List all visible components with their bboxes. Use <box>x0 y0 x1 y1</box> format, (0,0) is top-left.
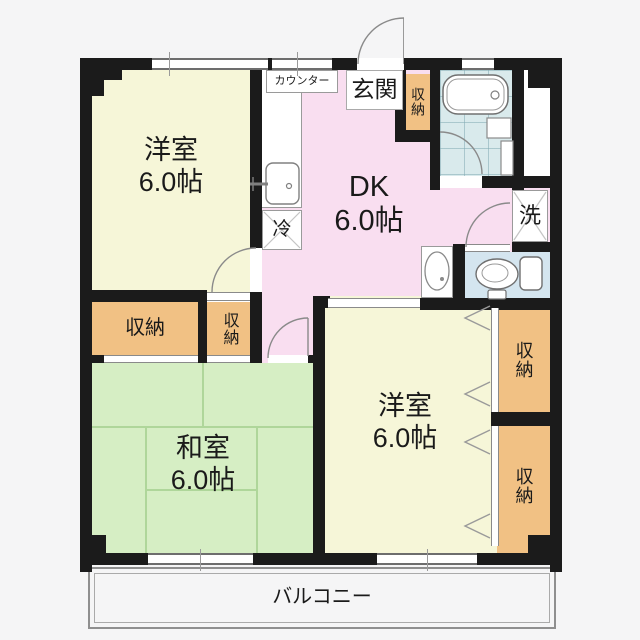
counter-label: カウンター <box>266 71 338 92</box>
window-tick <box>200 549 201 571</box>
toilet-room-floor <box>465 252 550 300</box>
room-dk-label: DK6.0帖 <box>317 168 421 240</box>
wall-bit <box>92 355 104 363</box>
wall-toilet-left <box>453 244 465 310</box>
entrance-door-opening <box>357 58 404 70</box>
window <box>272 58 332 70</box>
laundry-label: 洗 <box>512 191 548 241</box>
bathroom-floor <box>440 70 512 176</box>
room-japanese-label: 和室6.0帖 <box>128 430 278 500</box>
door-opening <box>440 176 482 188</box>
pillar-top-right <box>528 58 562 88</box>
sliding-door-track <box>207 292 250 301</box>
wall-bath-right <box>512 58 524 190</box>
washbasin <box>421 246 453 298</box>
window-tick <box>427 549 428 571</box>
window-tick <box>169 52 170 76</box>
pillar-top-left <box>80 58 104 96</box>
entrance-door-leaf <box>403 18 404 64</box>
floorplan-page: { "rooms": { "western_a": {"label": "洋室"… <box>0 0 640 640</box>
room-western-a-label: 洋室6.0帖 <box>96 132 246 202</box>
wall-storage-right-divider <box>491 412 550 426</box>
wall-toilet-top <box>512 242 550 252</box>
door-opening <box>250 248 262 292</box>
window <box>462 58 494 70</box>
storage-label: 収納 <box>406 74 430 130</box>
pillar-bottom-left <box>80 535 106 565</box>
door-opening <box>465 244 510 252</box>
entrance-label: 玄関 <box>346 72 403 108</box>
storage-label: 収納 <box>497 426 550 546</box>
storage-label: 収納 <box>92 302 198 355</box>
room-western-b-label: 洋室6.0帖 <box>330 388 480 458</box>
storage-label: 収納 <box>497 308 550 412</box>
balcony-label: バルコニー <box>88 580 556 616</box>
corridor-floor <box>262 296 313 363</box>
wall-entrance-storage-bottom <box>395 130 440 142</box>
wall-room-b-left <box>313 296 325 553</box>
door-opening <box>268 355 308 363</box>
storage-label: 収納 <box>207 302 250 355</box>
tatami-line <box>202 363 204 428</box>
wall-left <box>80 58 92 572</box>
refrigerator-label: 冷 <box>262 211 302 249</box>
wall-storage-top <box>92 290 200 302</box>
wall-right <box>550 58 562 572</box>
wall-kitchen <box>250 70 262 248</box>
sliding-door-track <box>328 298 420 308</box>
wall-corridor-left <box>250 290 262 363</box>
sliding-door-track <box>207 355 250 363</box>
wall-storage-divider <box>198 290 207 363</box>
sliding-door-track <box>104 355 198 363</box>
